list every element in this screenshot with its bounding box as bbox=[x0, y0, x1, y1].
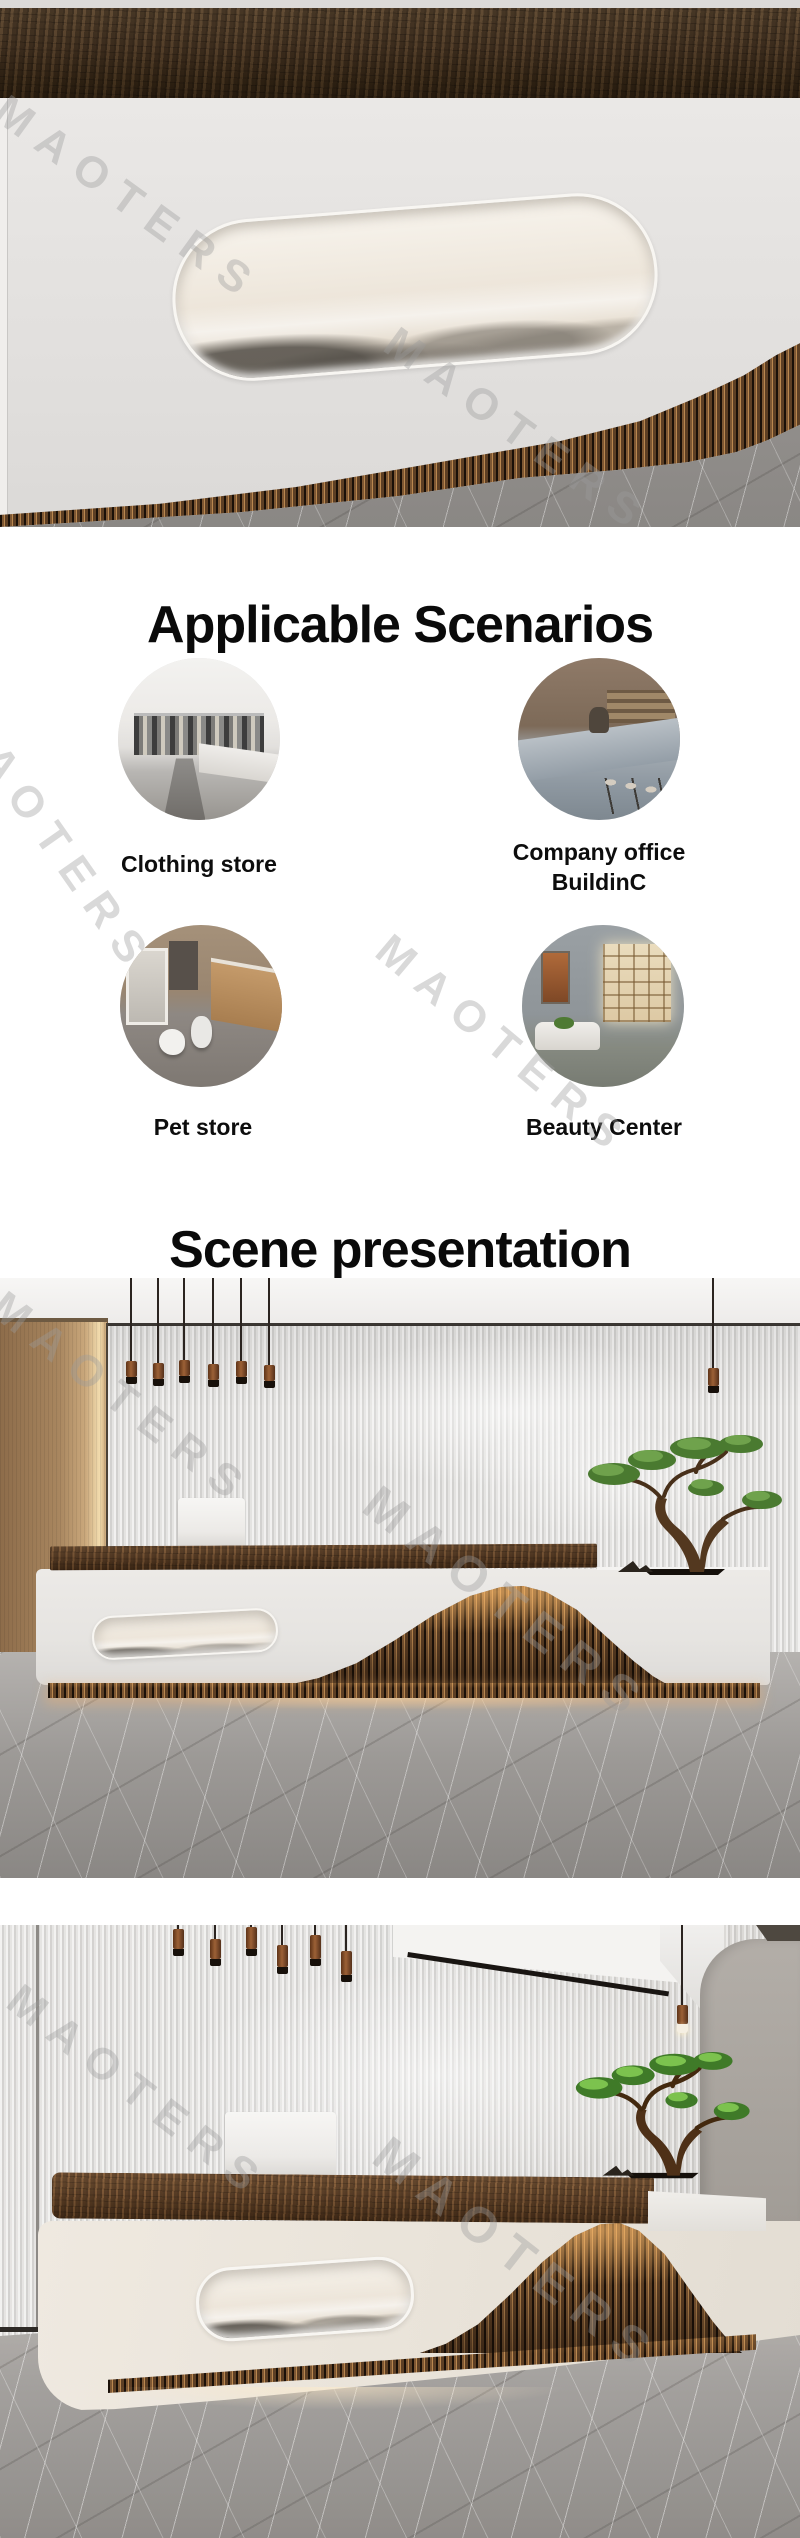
photo-detail bbox=[191, 1016, 212, 1048]
pendant-light bbox=[276, 1925, 288, 1974]
photo-detail bbox=[541, 951, 569, 1004]
mountain-art-inlay bbox=[194, 2254, 417, 2343]
product-detail-page: MAOTERS MAOTERS Applicable Scenarios Clo… bbox=[0, 0, 800, 2538]
pendant-light bbox=[235, 1278, 247, 1384]
pendant-light bbox=[707, 1278, 719, 1393]
scenarios-title: Applicable Scenarios bbox=[0, 598, 800, 653]
reception-monitor bbox=[178, 1498, 245, 1546]
beauty-center-photo bbox=[522, 925, 684, 1087]
scenario-label: Clothing store bbox=[79, 849, 319, 879]
floor-glow bbox=[44, 1698, 760, 1714]
photo-detail bbox=[211, 958, 282, 1033]
panel-edge-line bbox=[0, 98, 8, 527]
scenario-label: Beauty Center bbox=[484, 1112, 724, 1142]
pendant-light bbox=[178, 1278, 190, 1383]
clothing-store-photo bbox=[118, 658, 280, 820]
scenario-label: Pet store bbox=[83, 1112, 323, 1142]
showroom-photo-front: MAOTERS MAOTERS bbox=[0, 1278, 800, 1878]
photo-detail bbox=[602, 778, 673, 814]
photo-detail bbox=[554, 1017, 573, 1028]
reception-monitor bbox=[225, 2112, 336, 2175]
pendant-light bbox=[340, 1925, 352, 1982]
scenario-label: Company office BuildinC bbox=[479, 837, 719, 897]
showroom-photo-angle: MAOTERS MAOTERS bbox=[0, 1925, 800, 2538]
pendant-light bbox=[676, 1925, 688, 2033]
counter-wood-top bbox=[0, 8, 800, 98]
photo-detail bbox=[589, 707, 608, 733]
pet-store-photo bbox=[120, 925, 282, 1087]
wall-skirting bbox=[0, 2327, 38, 2332]
pendant-light bbox=[263, 1278, 275, 1388]
counter-wood-top bbox=[50, 1544, 597, 1571]
photo-detail bbox=[603, 944, 671, 1022]
scene-title: Scene presentation bbox=[0, 1223, 800, 1278]
floor-glow bbox=[70, 2387, 670, 2417]
applicable-scenarios-section: Applicable Scenarios Clothing store Comp… bbox=[0, 527, 800, 1178]
pendant-light bbox=[172, 1925, 184, 1956]
pendant-light bbox=[125, 1278, 137, 1384]
photo-detail bbox=[169, 941, 198, 990]
counter-closeup-photo: MAOTERS MAOTERS bbox=[0, 0, 800, 527]
pendant-light bbox=[309, 1925, 321, 1966]
company-office-photo bbox=[518, 658, 680, 820]
pendant-light bbox=[209, 1925, 221, 1966]
pendant-light bbox=[207, 1278, 219, 1387]
pendant-light bbox=[152, 1278, 164, 1386]
photo-detail bbox=[607, 690, 675, 722]
photo-detail bbox=[126, 948, 168, 1025]
bonsai-tree bbox=[548, 1426, 788, 1576]
slat-base-strip bbox=[48, 1683, 760, 1698]
pendant-light bbox=[245, 1925, 257, 1956]
photo-detail bbox=[159, 1029, 185, 1055]
bonsai-tree bbox=[540, 2027, 755, 2197]
